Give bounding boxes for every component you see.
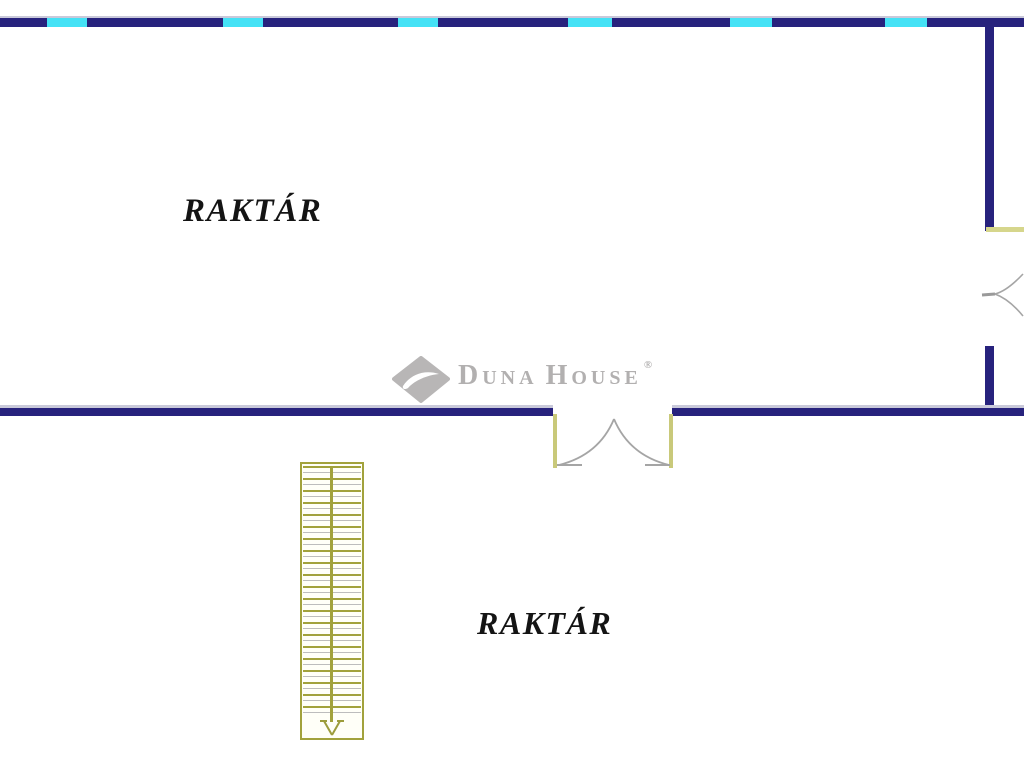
duna-house-diamond-icon <box>392 356 450 404</box>
right-door-jamb <box>986 227 1024 232</box>
room-label-upper: RAKTÁR <box>183 195 322 228</box>
right-door-swing <box>978 264 1024 320</box>
wordmark-letter: D <box>458 362 482 390</box>
window-segment <box>885 18 927 27</box>
window-segment <box>730 18 772 27</box>
window-segment <box>398 18 438 27</box>
floorplan-canvas: DUNAHOUSE® RAKTÁR RAKTÁR <box>0 0 1024 768</box>
window-segment <box>223 18 263 27</box>
room-label-lower: RAKTÁR <box>477 607 612 639</box>
middle-wall-left <box>0 408 553 416</box>
middle-wall-right <box>672 408 1024 416</box>
wordmark-letter: H <box>546 362 572 390</box>
watermark-logo: DUNAHOUSE® <box>392 356 656 404</box>
window-segment <box>47 18 87 27</box>
right-wall-upper <box>985 26 994 231</box>
window-segment <box>568 18 612 27</box>
stair-walkline <box>330 466 333 722</box>
stair-direction-arrow <box>319 718 345 737</box>
wordmark-letters: UNA <box>482 368 537 388</box>
top-wall <box>0 18 1024 27</box>
door-swing-icon <box>978 264 1024 320</box>
double-door-swing <box>552 414 676 468</box>
watermark-wordmark: DUNAHOUSE® <box>458 362 656 390</box>
down-arrow-icon <box>319 718 345 737</box>
double-door-swing-icon <box>552 414 676 468</box>
registered-mark: ® <box>644 360 656 371</box>
staircase <box>300 462 364 740</box>
wordmark-letters: OUSE <box>571 368 641 388</box>
